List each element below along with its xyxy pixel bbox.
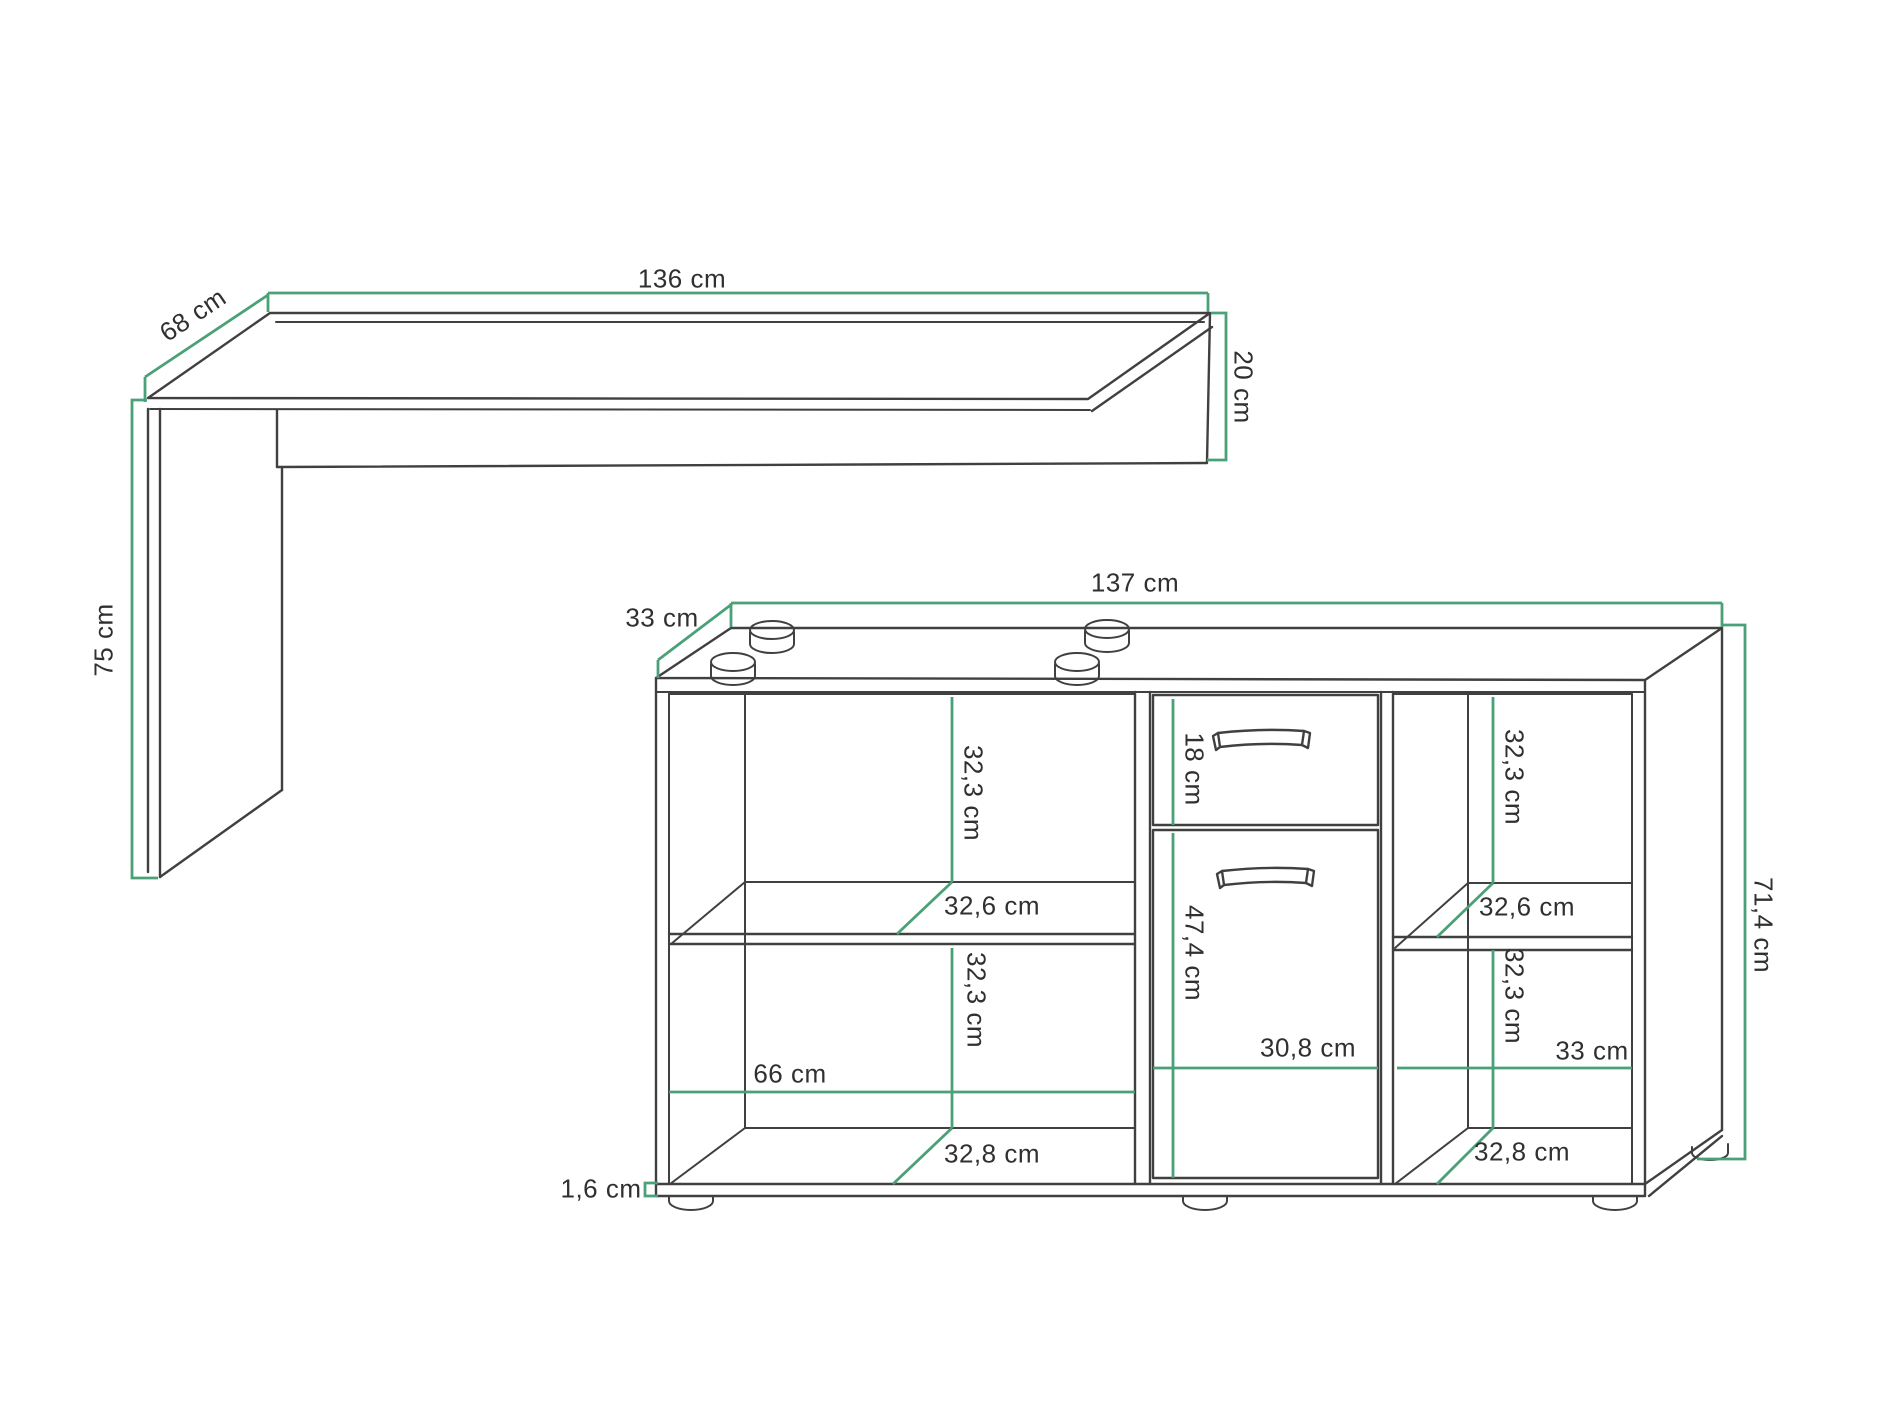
right-width-label: 33 cm [1555,1036,1628,1067]
foot-cylinder [1085,620,1129,652]
left-lower-height-label: 32,3 cm [961,952,992,1048]
left-shelf-depth-label: 32,6 cm [944,891,1040,922]
bottom-panel-thickness-label: 1,6 cm [560,1174,641,1205]
desk-dimension-lines [132,293,1226,878]
cabinet-depth-label: 33 cm [625,603,698,634]
foot-cylinder [711,653,755,685]
loose-feet-on-top [711,620,1129,685]
door-height-label: 47,4 cm [1179,905,1210,1001]
right-bottom-depth-label: 32,8 cm [1474,1137,1570,1168]
right-shelf-depth-label: 32,6 cm [1479,892,1575,923]
left-upper-height-label: 32,3 cm [958,745,989,841]
left-width-label: 66 cm [753,1059,826,1090]
cabinet-width-label: 137 cm [1091,568,1179,599]
desk-width-label: 136 cm [638,264,726,295]
middle-width-label: 30,8 cm [1260,1033,1356,1064]
left-bottom-depth-label: 32,8 cm [944,1139,1040,1170]
cabinet-height-label: 71,4 cm [1748,877,1779,973]
right-upper-height-label: 32,3 cm [1499,729,1530,825]
desk-outline [148,313,1212,877]
desk-apron-height-label: 20 cm [1228,350,1259,423]
foot-cylinder [1055,653,1099,685]
drawer-height-label: 18 cm [1179,732,1210,805]
drawer-handle [1213,730,1310,750]
diagram-line-art [0,0,1881,1410]
right-lower-height-label: 32,3 cm [1499,948,1530,1044]
door-handle [1217,868,1314,888]
furniture-dimension-diagram: 136 cm 68 cm 20 cm 75 cm 137 cm 33 cm 71… [0,0,1881,1410]
desk-height-label: 75 cm [89,603,120,676]
foot-cylinder [750,621,794,653]
